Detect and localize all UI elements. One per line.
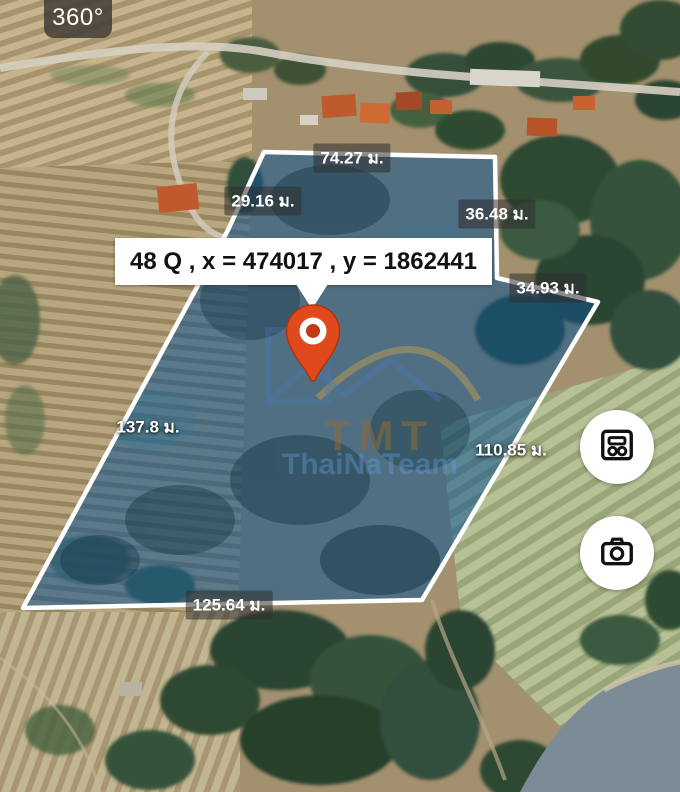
camera-button[interactable]: [580, 516, 654, 590]
measurement-label-left: 137.8 ม.: [116, 414, 179, 441]
camera-icon: [598, 532, 636, 575]
coordinate-callout: 48 Q , x = 474017 , y = 1862441: [115, 238, 492, 285]
view-360-button[interactable]: 360°: [44, 0, 112, 38]
measurement-panel-button[interactable]: [580, 410, 654, 484]
measurement-label-upper-left: 29.16 ม.: [224, 187, 301, 216]
measurement-label-upper-right: 36.48 ม.: [458, 200, 535, 229]
location-pin-marker[interactable]: [284, 303, 342, 385]
satellite-map-background: [0, 0, 680, 792]
measurement-label-top: 74.27 ม.: [313, 144, 390, 173]
measurement-panel-icon: [598, 426, 636, 469]
measurement-label-right-lower: 110.85 ม.: [475, 437, 547, 464]
measurement-label-right-upper: 34.93 ม.: [509, 274, 586, 303]
measurement-label-bottom: 125.64 ม.: [186, 591, 273, 620]
map-view[interactable]: TMT ThaiNaTeam 48 Q , x = 474017 , y = 1…: [0, 0, 680, 792]
view-360-label: 360°: [52, 4, 104, 32]
